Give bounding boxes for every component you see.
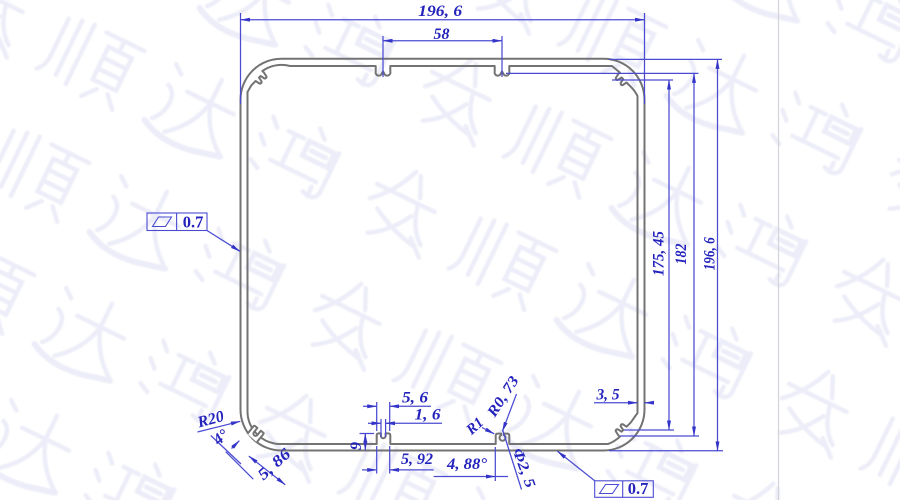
svg-text:5, 6: 5, 6 (402, 390, 428, 407)
svg-text:0.7: 0.7 (183, 213, 204, 232)
svg-text:9: 9 (348, 442, 365, 450)
svg-text:182: 182 (673, 244, 690, 265)
svg-text:4, 88°: 4, 88° (446, 456, 488, 473)
svg-text:4°: 4° (209, 426, 232, 449)
svg-text:196, 6: 196, 6 (418, 3, 462, 20)
svg-text:196, 6: 196, 6 (702, 237, 719, 270)
svg-text:5, 92: 5, 92 (401, 451, 433, 468)
svg-text:Φ2, 5: Φ2, 5 (509, 446, 538, 491)
svg-text:58: 58 (434, 26, 450, 43)
svg-text:1, 6: 1, 6 (415, 407, 441, 424)
svg-text:175, 45: 175, 45 (651, 231, 668, 276)
svg-text:3, 5: 3, 5 (596, 387, 620, 404)
svg-text:0.7: 0.7 (628, 479, 649, 498)
svg-text:R0, 73: R0, 73 (484, 373, 523, 421)
